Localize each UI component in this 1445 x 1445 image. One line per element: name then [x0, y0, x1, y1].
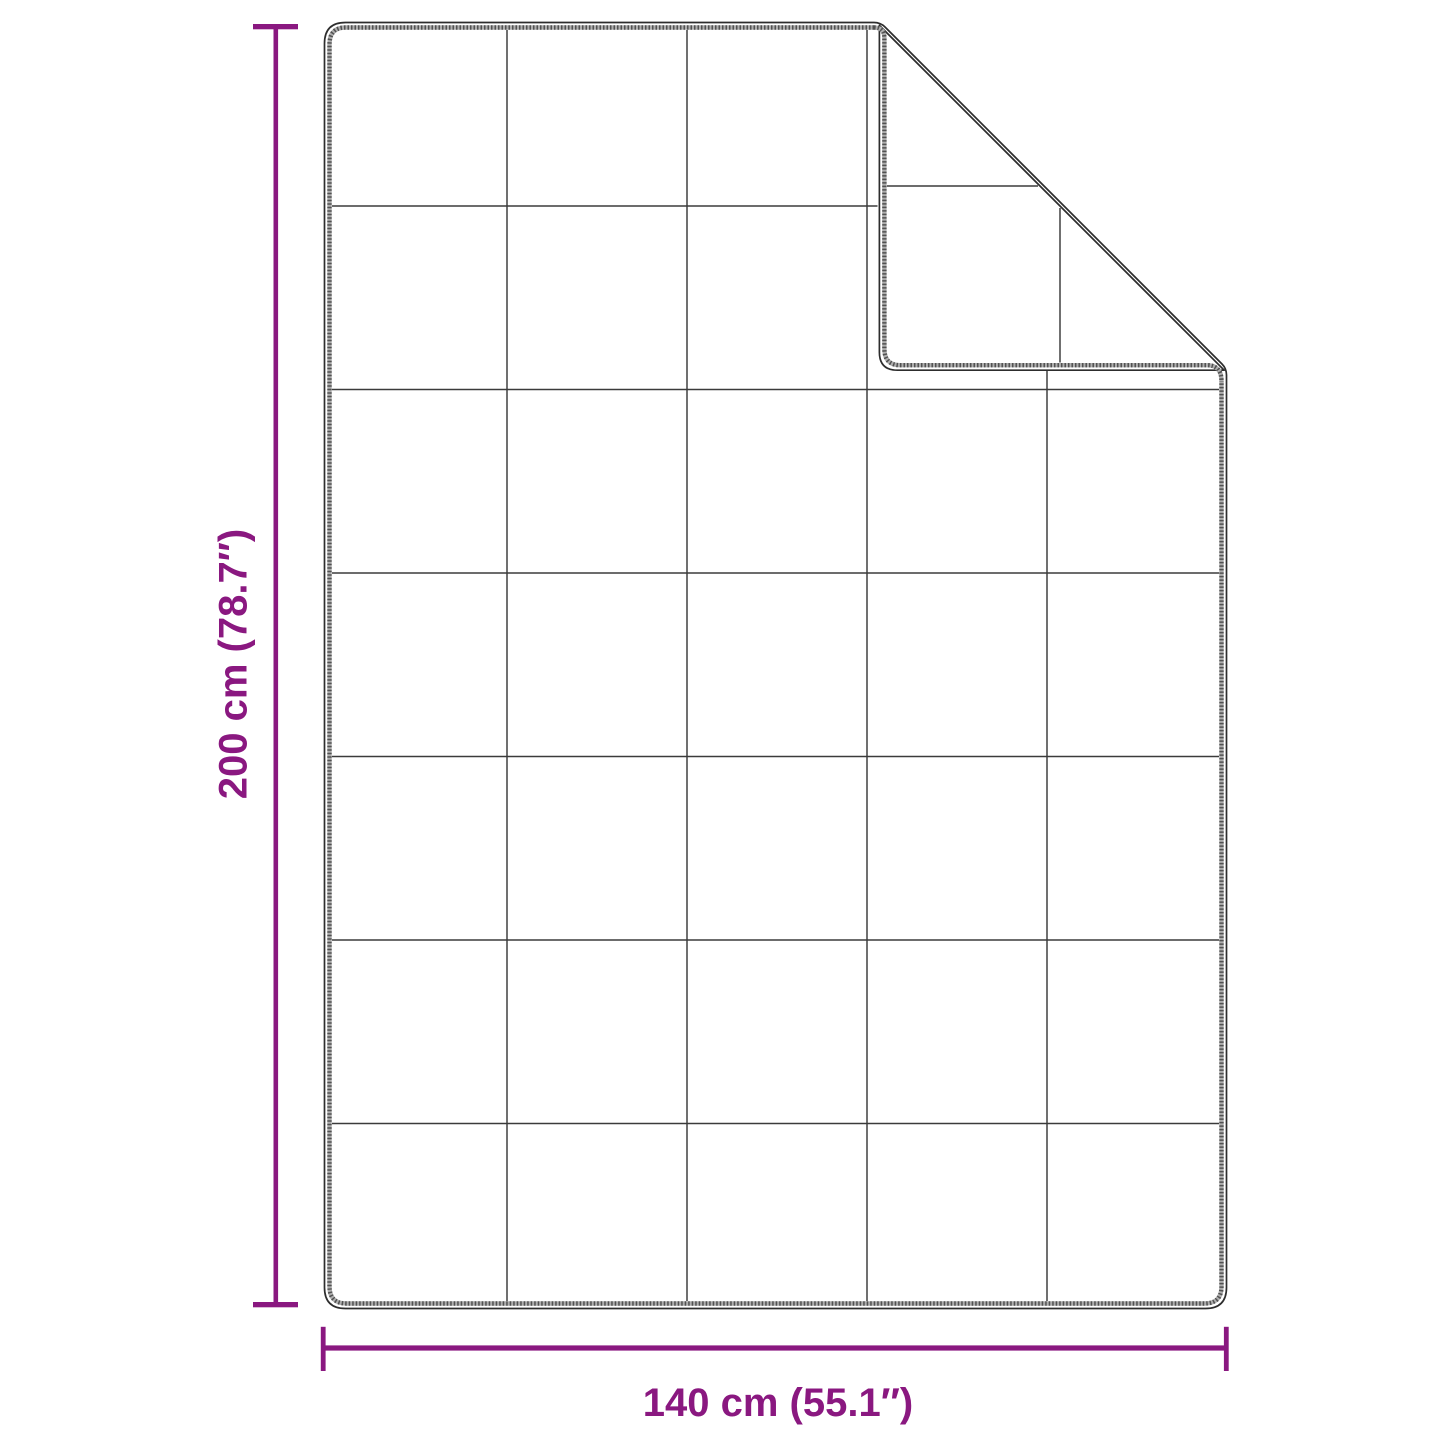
- svg-text:200 cm (78.7″): 200 cm (78.7″): [212, 529, 256, 799]
- svg-text:140 cm (55.1″): 140 cm (55.1″): [643, 1381, 913, 1425]
